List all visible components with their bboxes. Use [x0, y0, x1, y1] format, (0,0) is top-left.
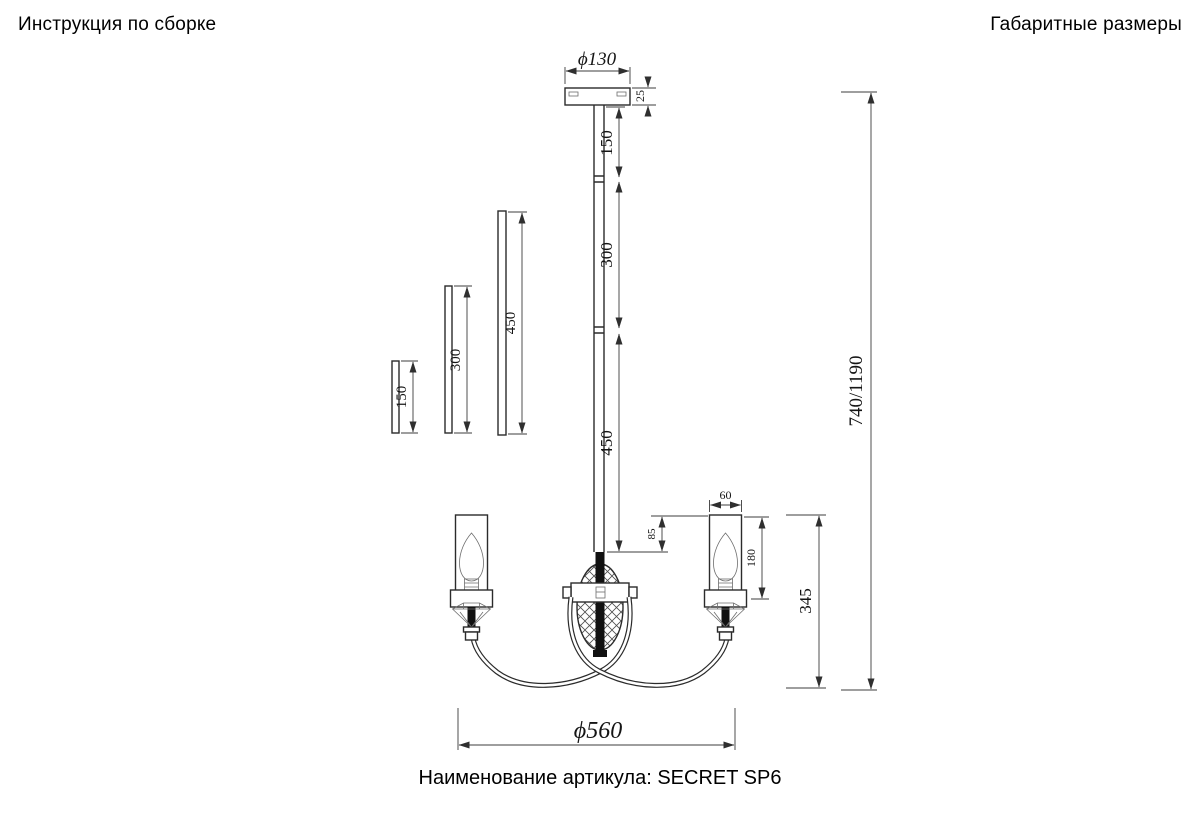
- article-name-label: Наименование артикула: SECRET SP6: [0, 767, 1200, 790]
- dim-shade-width: 60: [710, 488, 742, 512]
- center-hub: [571, 583, 629, 602]
- spare-rod-long: 450: [498, 211, 527, 435]
- svg-text:ϕ130: ϕ130: [578, 49, 617, 70]
- left-lamp: [451, 515, 493, 640]
- spare-rod-medium: 300: [445, 286, 472, 433]
- dim-canopy-thickness: 25: [632, 77, 656, 116]
- dim-stem-segment-3: 450: [597, 334, 619, 551]
- svg-text:450: 450: [597, 430, 616, 456]
- assembly-sheet: Инструкция по сборке Габаритные размеры …: [0, 0, 1200, 827]
- dim-spare-rod-short: 150: [394, 386, 410, 409]
- right-lamp: [705, 515, 747, 640]
- svg-text:740/1190: 740/1190: [846, 355, 867, 426]
- ceiling-canopy: [565, 88, 630, 105]
- technical-drawing: 150 300 450: [0, 0, 1200, 827]
- svg-text:150: 150: [597, 130, 616, 156]
- spare-rod-short: 150: [392, 361, 418, 433]
- svg-text:300: 300: [597, 242, 616, 268]
- svg-text:180: 180: [744, 549, 758, 567]
- dim-stem-segment-2: 300: [597, 182, 619, 328]
- svg-text:85: 85: [646, 528, 658, 540]
- left-socket-band: [451, 590, 493, 607]
- dim-stem-segment-1: 150: [597, 107, 625, 177]
- right-socket-band: [705, 590, 747, 607]
- dim-spare-rod-medium: 300: [448, 349, 464, 372]
- dim-overall-height: 740/1190: [841, 92, 877, 690]
- svg-text:345: 345: [796, 588, 815, 614]
- central-stem: [594, 105, 604, 552]
- dim-overall-diameter: ϕ560: [458, 708, 735, 750]
- dim-canopy-diameter: ϕ130: [565, 49, 630, 84]
- dim-center-drop: 85: [607, 516, 708, 552]
- dim-shade-height: 180: [744, 517, 769, 599]
- dim-spare-rod-long: 450: [503, 312, 519, 335]
- svg-text:25: 25: [633, 90, 647, 102]
- svg-text:ϕ560: ϕ560: [574, 718, 622, 744]
- svg-text:60: 60: [720, 488, 732, 502]
- dim-fixture-height: 345: [786, 515, 826, 688]
